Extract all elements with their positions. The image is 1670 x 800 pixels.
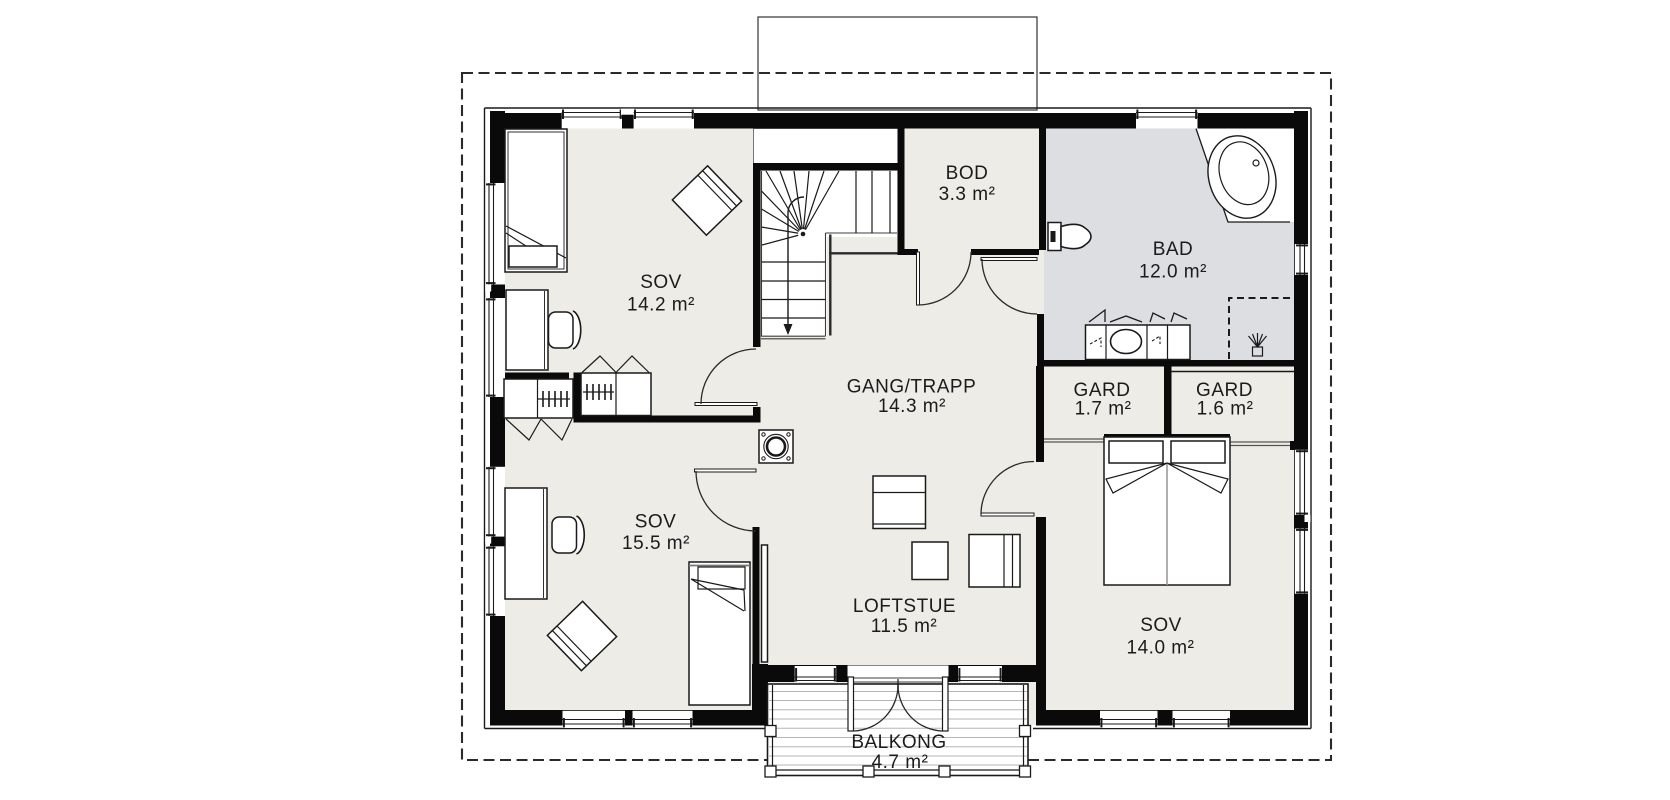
svg-text:15.5 m²: 15.5 m² <box>622 533 690 554</box>
svg-text:1.6 m²: 1.6 m² <box>1197 399 1254 420</box>
svg-text:3.3 m²: 3.3 m² <box>939 184 996 205</box>
svg-text:SOV: SOV <box>640 272 682 293</box>
svg-text:BOD: BOD <box>946 163 989 184</box>
svg-text:14.0 m²: 14.0 m² <box>1127 638 1195 659</box>
svg-text:LOFTSTUE: LOFTSTUE <box>853 596 956 617</box>
svg-text:BAD: BAD <box>1153 239 1194 260</box>
svg-text:4.7 m²: 4.7 m² <box>872 752 929 773</box>
svg-text:SOV: SOV <box>635 512 677 533</box>
svg-text:11.5 m²: 11.5 m² <box>871 616 938 637</box>
svg-text:BALKONG: BALKONG <box>851 732 946 753</box>
svg-text:SOV: SOV <box>1140 615 1182 636</box>
svg-text:14.3 m²: 14.3 m² <box>878 396 946 417</box>
svg-text:1.7 m²: 1.7 m² <box>1075 399 1132 420</box>
svg-text:14.2 m²: 14.2 m² <box>627 295 695 316</box>
svg-text:12.0 m²: 12.0 m² <box>1139 262 1207 283</box>
svg-text:GANG/TRAPP: GANG/TRAPP <box>847 377 977 398</box>
